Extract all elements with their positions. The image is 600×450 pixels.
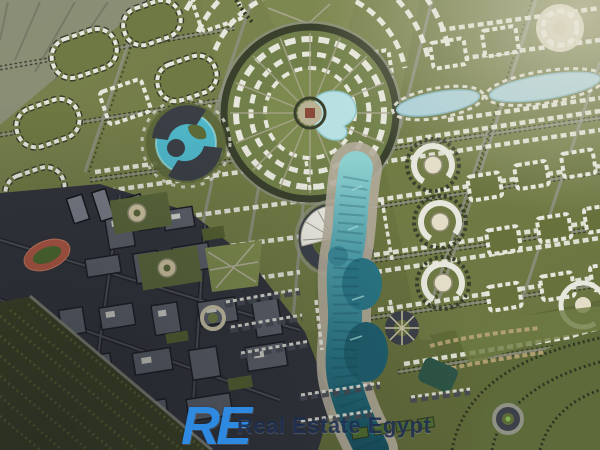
aerial-masterplan-screenshot: RE Real Estate Egypt xyxy=(0,0,600,450)
masterplan-render xyxy=(0,0,600,450)
shade-overlay xyxy=(0,0,600,450)
